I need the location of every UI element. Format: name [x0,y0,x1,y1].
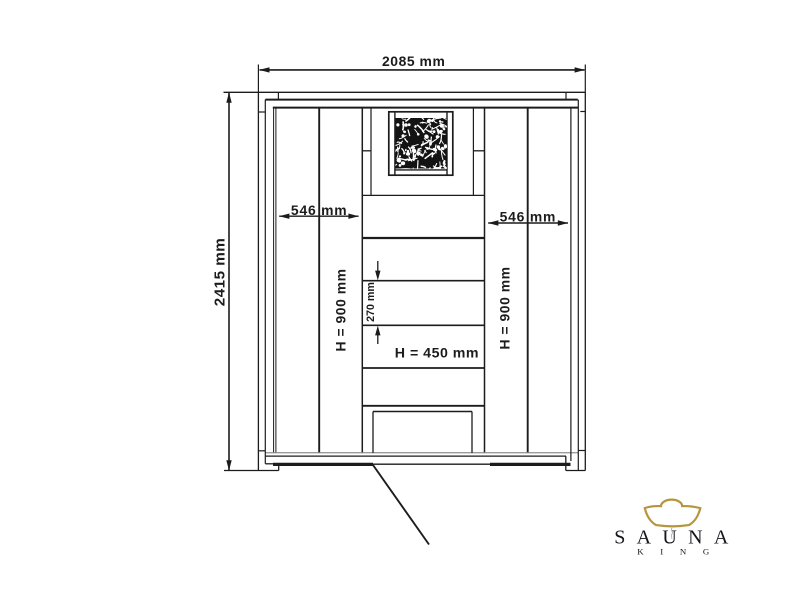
svg-text:2415 mm: 2415 mm [212,238,229,307]
svg-text:546 mm: 546 mm [291,202,348,218]
svg-text:2085 mm: 2085 mm [382,53,445,69]
svg-text:KING: KING [637,547,726,557]
svg-text:H = 900 mm: H = 900 mm [496,266,512,349]
svg-text:270 mm: 270 mm [365,282,377,322]
svg-text:H = 900 mm: H = 900 mm [332,268,348,351]
svg-text:SAUNA: SAUNA [614,527,739,549]
svg-text:546 mm: 546 mm [500,209,557,225]
svg-text:H = 450 mm: H = 450 mm [395,345,479,361]
